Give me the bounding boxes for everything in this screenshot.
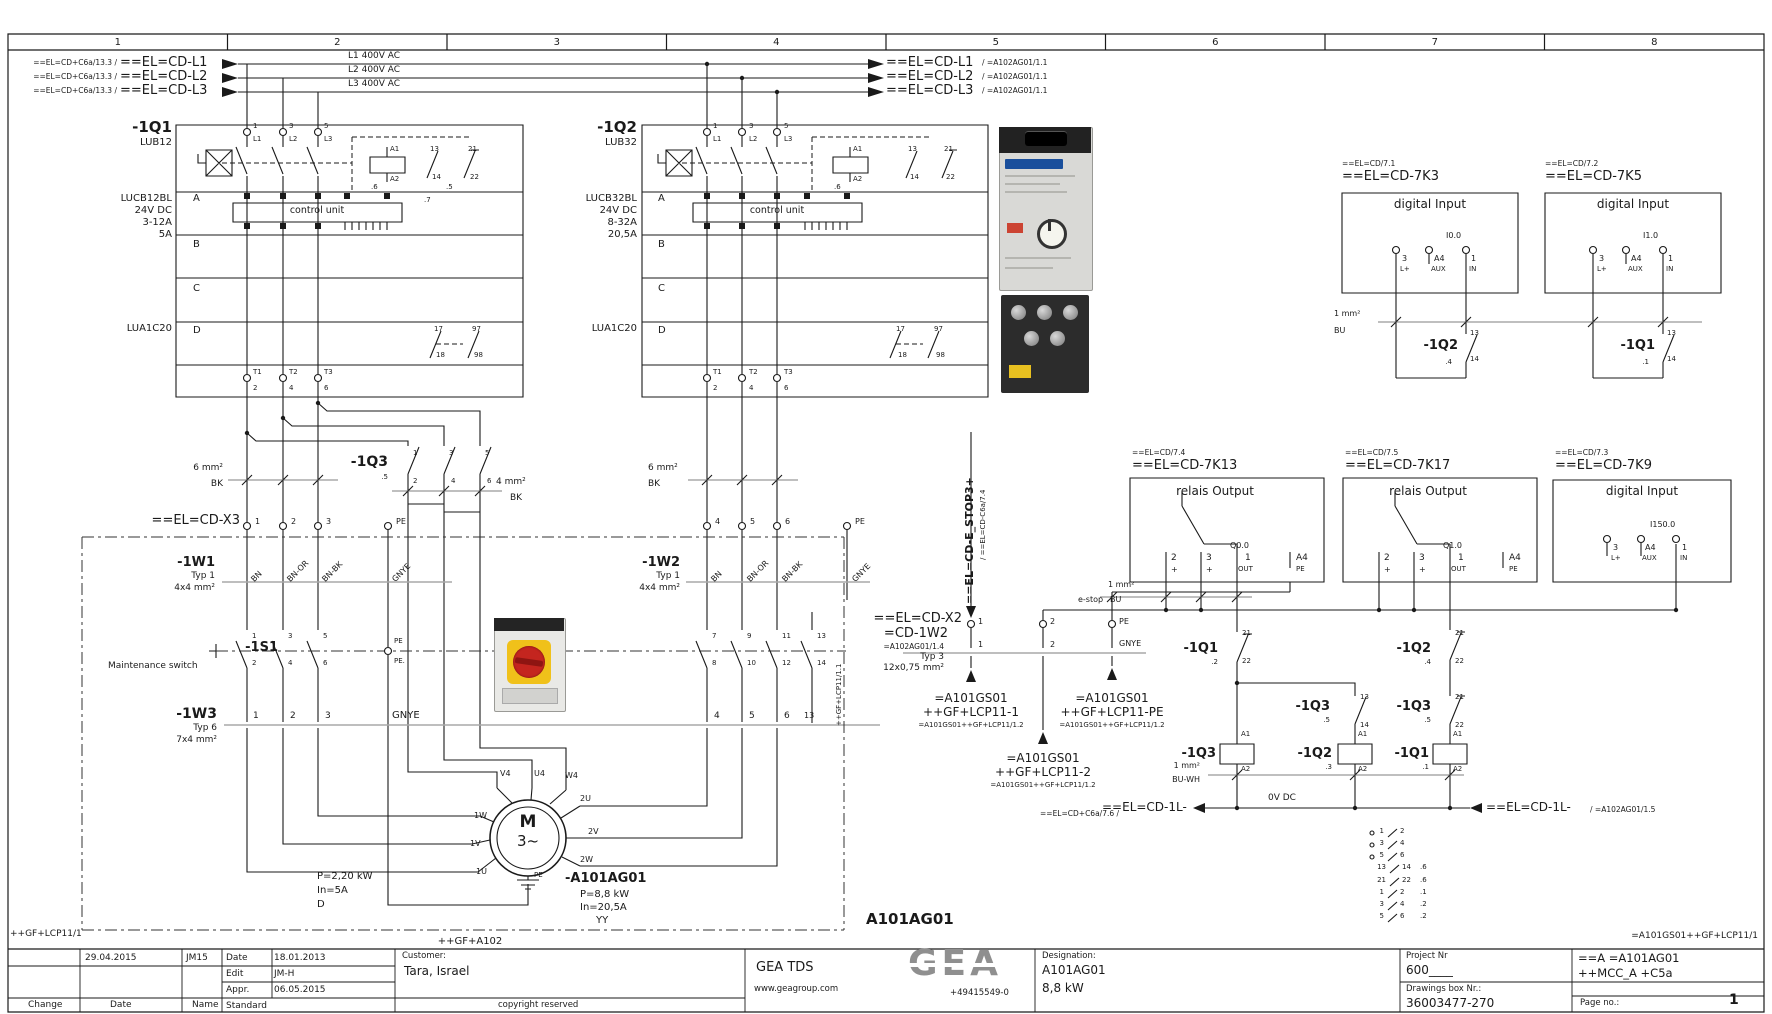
plant-reference: ==A =A101AG01 xyxy=(1578,951,1679,965)
row-date-value: 18.01.2013 xyxy=(274,953,326,963)
drawings-box-label: Drawings box Nr.: xyxy=(1406,984,1481,994)
company-name: GEA TDS xyxy=(756,960,814,975)
project-label: Project Nr xyxy=(1406,951,1448,961)
project-number: 600____ xyxy=(1406,963,1453,977)
gea-logo: GEA xyxy=(908,946,1032,988)
row-appr-value: 06.05.2015 xyxy=(274,985,326,995)
location-reference: ++MCC_A +C5a xyxy=(1578,966,1673,980)
company-website: www.geagroup.com xyxy=(754,984,838,994)
customer-label: Customer: xyxy=(402,951,446,961)
page-number: 1 xyxy=(1729,992,1739,1008)
title-block-grid xyxy=(0,0,1772,1014)
drawings-box-number: 36003477-270 xyxy=(1406,996,1494,1010)
row-edit-label: Edit xyxy=(226,969,243,979)
customer-name: Tara, Israel xyxy=(404,964,469,978)
revision-name: JM15 xyxy=(186,953,208,963)
designation-value: A101AG01 xyxy=(1042,963,1106,977)
copyright-note: copyright reserved xyxy=(498,1000,578,1010)
row-date-label: Date xyxy=(226,953,248,963)
schematic-page: 12345678 ==EL=CD+C6a/13.3 /==EL=CD-L1==E… xyxy=(0,0,1772,1014)
company-phone: +49415549-0 xyxy=(950,988,1009,998)
page-label: Page no.: xyxy=(1580,998,1619,1008)
revision-date: 29.04.2015 xyxy=(85,953,137,963)
change-label: Change xyxy=(28,1000,62,1010)
designation-power: 8,8 kW xyxy=(1042,981,1084,995)
row-appr-label: Appr. xyxy=(226,985,249,995)
date-col-label: Date xyxy=(110,1000,132,1010)
row-standard-label: Standard xyxy=(226,1001,267,1011)
name-col-label: Name xyxy=(192,1000,219,1010)
row-edit-value: JM-H xyxy=(274,969,294,979)
designation-label: Designation: xyxy=(1042,951,1096,961)
